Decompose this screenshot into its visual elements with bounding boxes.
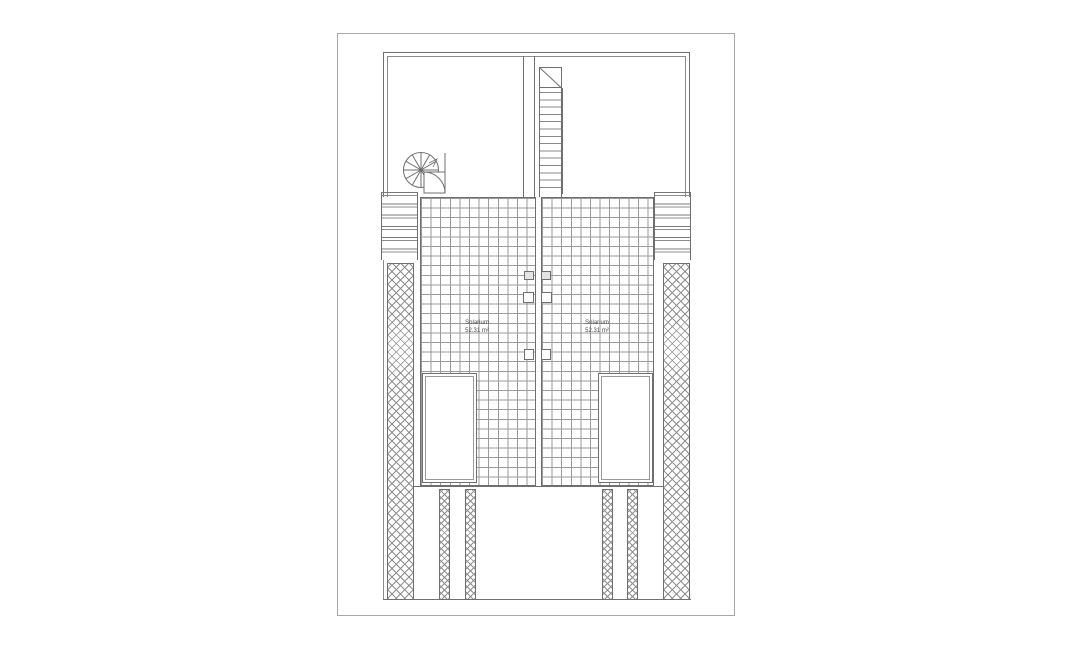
roof-opening-left-inner <box>425 376 474 480</box>
party-wall <box>523 56 535 197</box>
solarium-name: Solarium <box>567 320 627 328</box>
solarium-label-left: Solarium 52.31 m² <box>447 320 507 335</box>
lower-beam <box>627 489 638 600</box>
roof-opening-right <box>598 373 653 483</box>
solarium-label-right: Solarium 52.31 m² <box>567 320 627 335</box>
solarium-area: 52.31 m² <box>447 328 507 336</box>
roof-opening-right-inner <box>601 376 650 480</box>
deck-bottom-edge <box>414 486 663 487</box>
plan-bottom-edge <box>383 599 691 600</box>
lower-beam <box>439 489 450 600</box>
lower-beam <box>602 489 613 600</box>
right-room-wall <box>562 88 563 194</box>
vent-square <box>524 271 534 280</box>
railing-right <box>654 192 691 260</box>
side-wall-hatch-left <box>387 263 414 600</box>
stair-landing <box>539 67 562 88</box>
vent-square <box>524 349 534 360</box>
vent-square <box>523 292 534 303</box>
railing-left <box>381 192 418 260</box>
left-wall-line <box>383 260 384 600</box>
vent-square <box>541 271 551 280</box>
vent-square <box>541 292 552 303</box>
side-wall-hatch-right <box>663 263 690 600</box>
solarium-area: 52.31 m² <box>567 328 627 336</box>
plan-sheet: Solarium 52.31 m² Solarium 52.31 m² <box>0 0 1070 650</box>
lower-beam <box>465 489 476 600</box>
upper-block-inner-wall <box>387 56 686 197</box>
vent-square <box>541 349 551 360</box>
solarium-name: Solarium <box>447 320 507 328</box>
roof-opening-left <box>422 373 477 483</box>
stair-treads <box>540 92 561 194</box>
